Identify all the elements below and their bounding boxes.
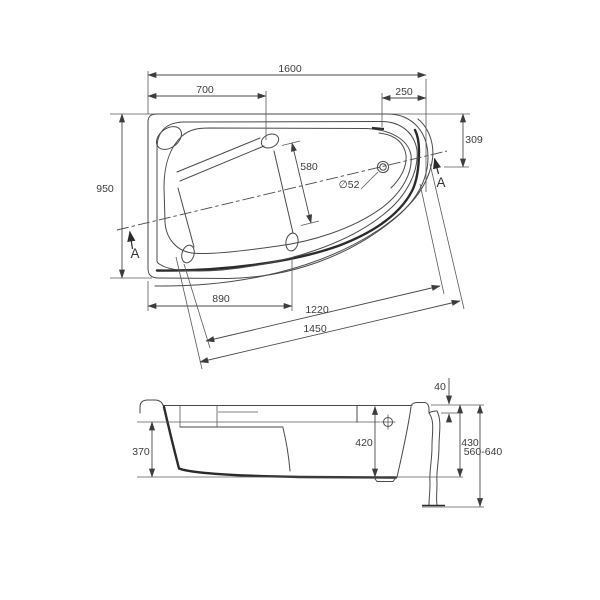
dimension-label: 890 [212, 293, 230, 305]
dimension-label: 250 [395, 86, 413, 98]
section-label: A [130, 246, 139, 261]
dim-installed-height: 560-640 [464, 405, 503, 507]
section-marker-left: A [130, 232, 140, 262]
backrest-edge-upper [177, 138, 260, 172]
backrest-edge-lower [180, 146, 264, 181]
leg-bracket-left-edge [429, 413, 433, 505]
dimension-label: 420 [355, 437, 373, 449]
overflow-symbol [381, 415, 396, 430]
bathtub-technical-drawing: ∅52 A A 1600 700 250 [0, 0, 600, 600]
dimension-label: 1450 [303, 323, 327, 335]
headrest-profile [140, 400, 164, 413]
side-view: 40 370 420 430 560-640 [132, 378, 502, 507]
leg-bracket-top [429, 411, 437, 413]
section-label: A [436, 175, 445, 190]
dimension-label: 700 [196, 84, 214, 96]
bottom-edge-left [178, 188, 194, 247]
dim-foot-edge: 890 [148, 257, 292, 311]
dim-head-section: 700 [148, 84, 266, 140]
dimension-label: 580 [300, 161, 318, 173]
dimension-label: 370 [132, 446, 150, 458]
overflow-mark [372, 128, 384, 129]
backrest-grip [259, 131, 281, 150]
tub-outline [148, 114, 428, 279]
basin-endcap-line [379, 133, 406, 188]
section-marker-right: A [435, 159, 446, 191]
dim-drain-top-offset: 309 [444, 114, 483, 167]
apron-edge [155, 119, 433, 286]
top-view: ∅52 A A 1600 700 250 [96, 63, 483, 369]
rim-right-end [411, 403, 429, 414]
technical-drawing-sheet: ∅52 A A 1600 700 250 [0, 0, 600, 600]
drain-leader-line [361, 172, 378, 189]
dimension-label: 950 [96, 183, 114, 195]
dim-inner-depth: 370 [132, 422, 152, 477]
dimension-line [292, 143, 311, 223]
dimension-label: 1220 [305, 304, 329, 316]
dim-shell-height: 430 [460, 405, 479, 477]
dim-overflow-depth: 420 [355, 407, 375, 478]
seat-grip-right [285, 232, 300, 252]
right-wall-profile [397, 407, 411, 477]
dim-rim-flange: 40 [434, 378, 449, 422]
dim-overall-width: 950 [96, 114, 152, 278]
dimension-label: 309 [465, 134, 483, 146]
dimension-label: 560-640 [464, 446, 503, 458]
dimension-label: 1600 [278, 63, 302, 75]
dimension-label: 40 [434, 381, 446, 393]
drain-diameter-label: ∅52 [339, 179, 360, 191]
basin-outline [164, 128, 411, 254]
dimension-line [200, 301, 460, 362]
section-arrow [435, 159, 439, 175]
bottom-edge-right [274, 151, 293, 233]
leg-bracket-right-edge [437, 411, 440, 505]
seat-front-edge [283, 428, 290, 471]
